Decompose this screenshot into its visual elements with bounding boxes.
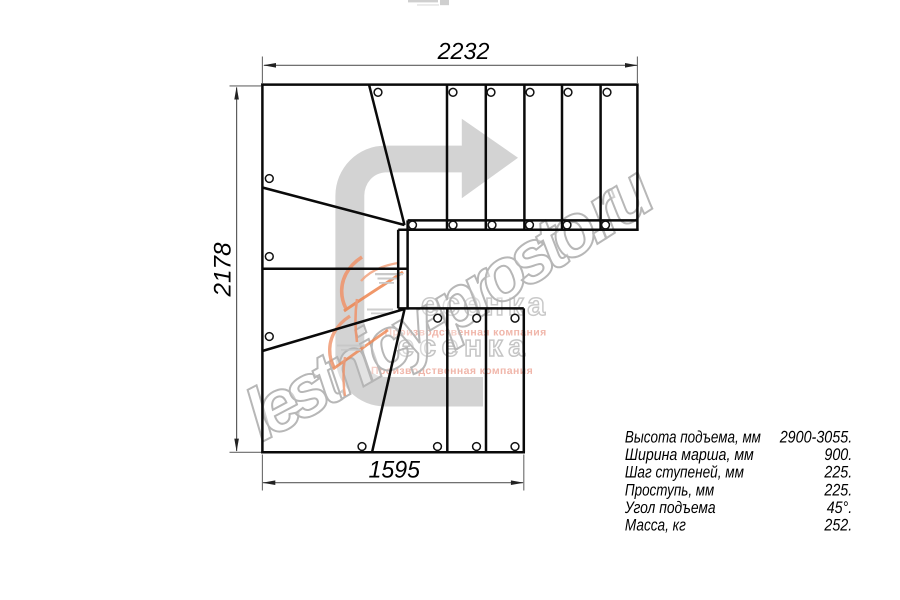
svg-text:252.: 252.: [824, 515, 853, 534]
svg-text:2900-3055.: 2900-3055.: [779, 428, 852, 447]
svg-text:Высота подъема, мм: Высота подъема, мм: [625, 428, 761, 447]
svg-text:Проступь, мм: Проступь, мм: [625, 480, 715, 499]
svg-text:1595: 1595: [369, 456, 421, 483]
svg-text:225.: 225.: [824, 480, 853, 499]
svg-text:225.: 225.: [824, 463, 853, 482]
svg-text:2178: 2178: [210, 242, 237, 298]
svg-text:Шаг ступеней, мм: Шаг ступеней, мм: [625, 463, 744, 482]
svg-text:900.: 900.: [824, 445, 852, 464]
svg-text:2232: 2232: [437, 38, 490, 64]
svg-text:Ширина марша, мм: Ширина марша, мм: [625, 445, 754, 464]
svg-text:Масса, кг: Масса, кг: [625, 515, 686, 534]
svg-text:Угол подъема: Угол подъема: [624, 498, 716, 517]
svg-text:45°.: 45°.: [827, 498, 853, 517]
